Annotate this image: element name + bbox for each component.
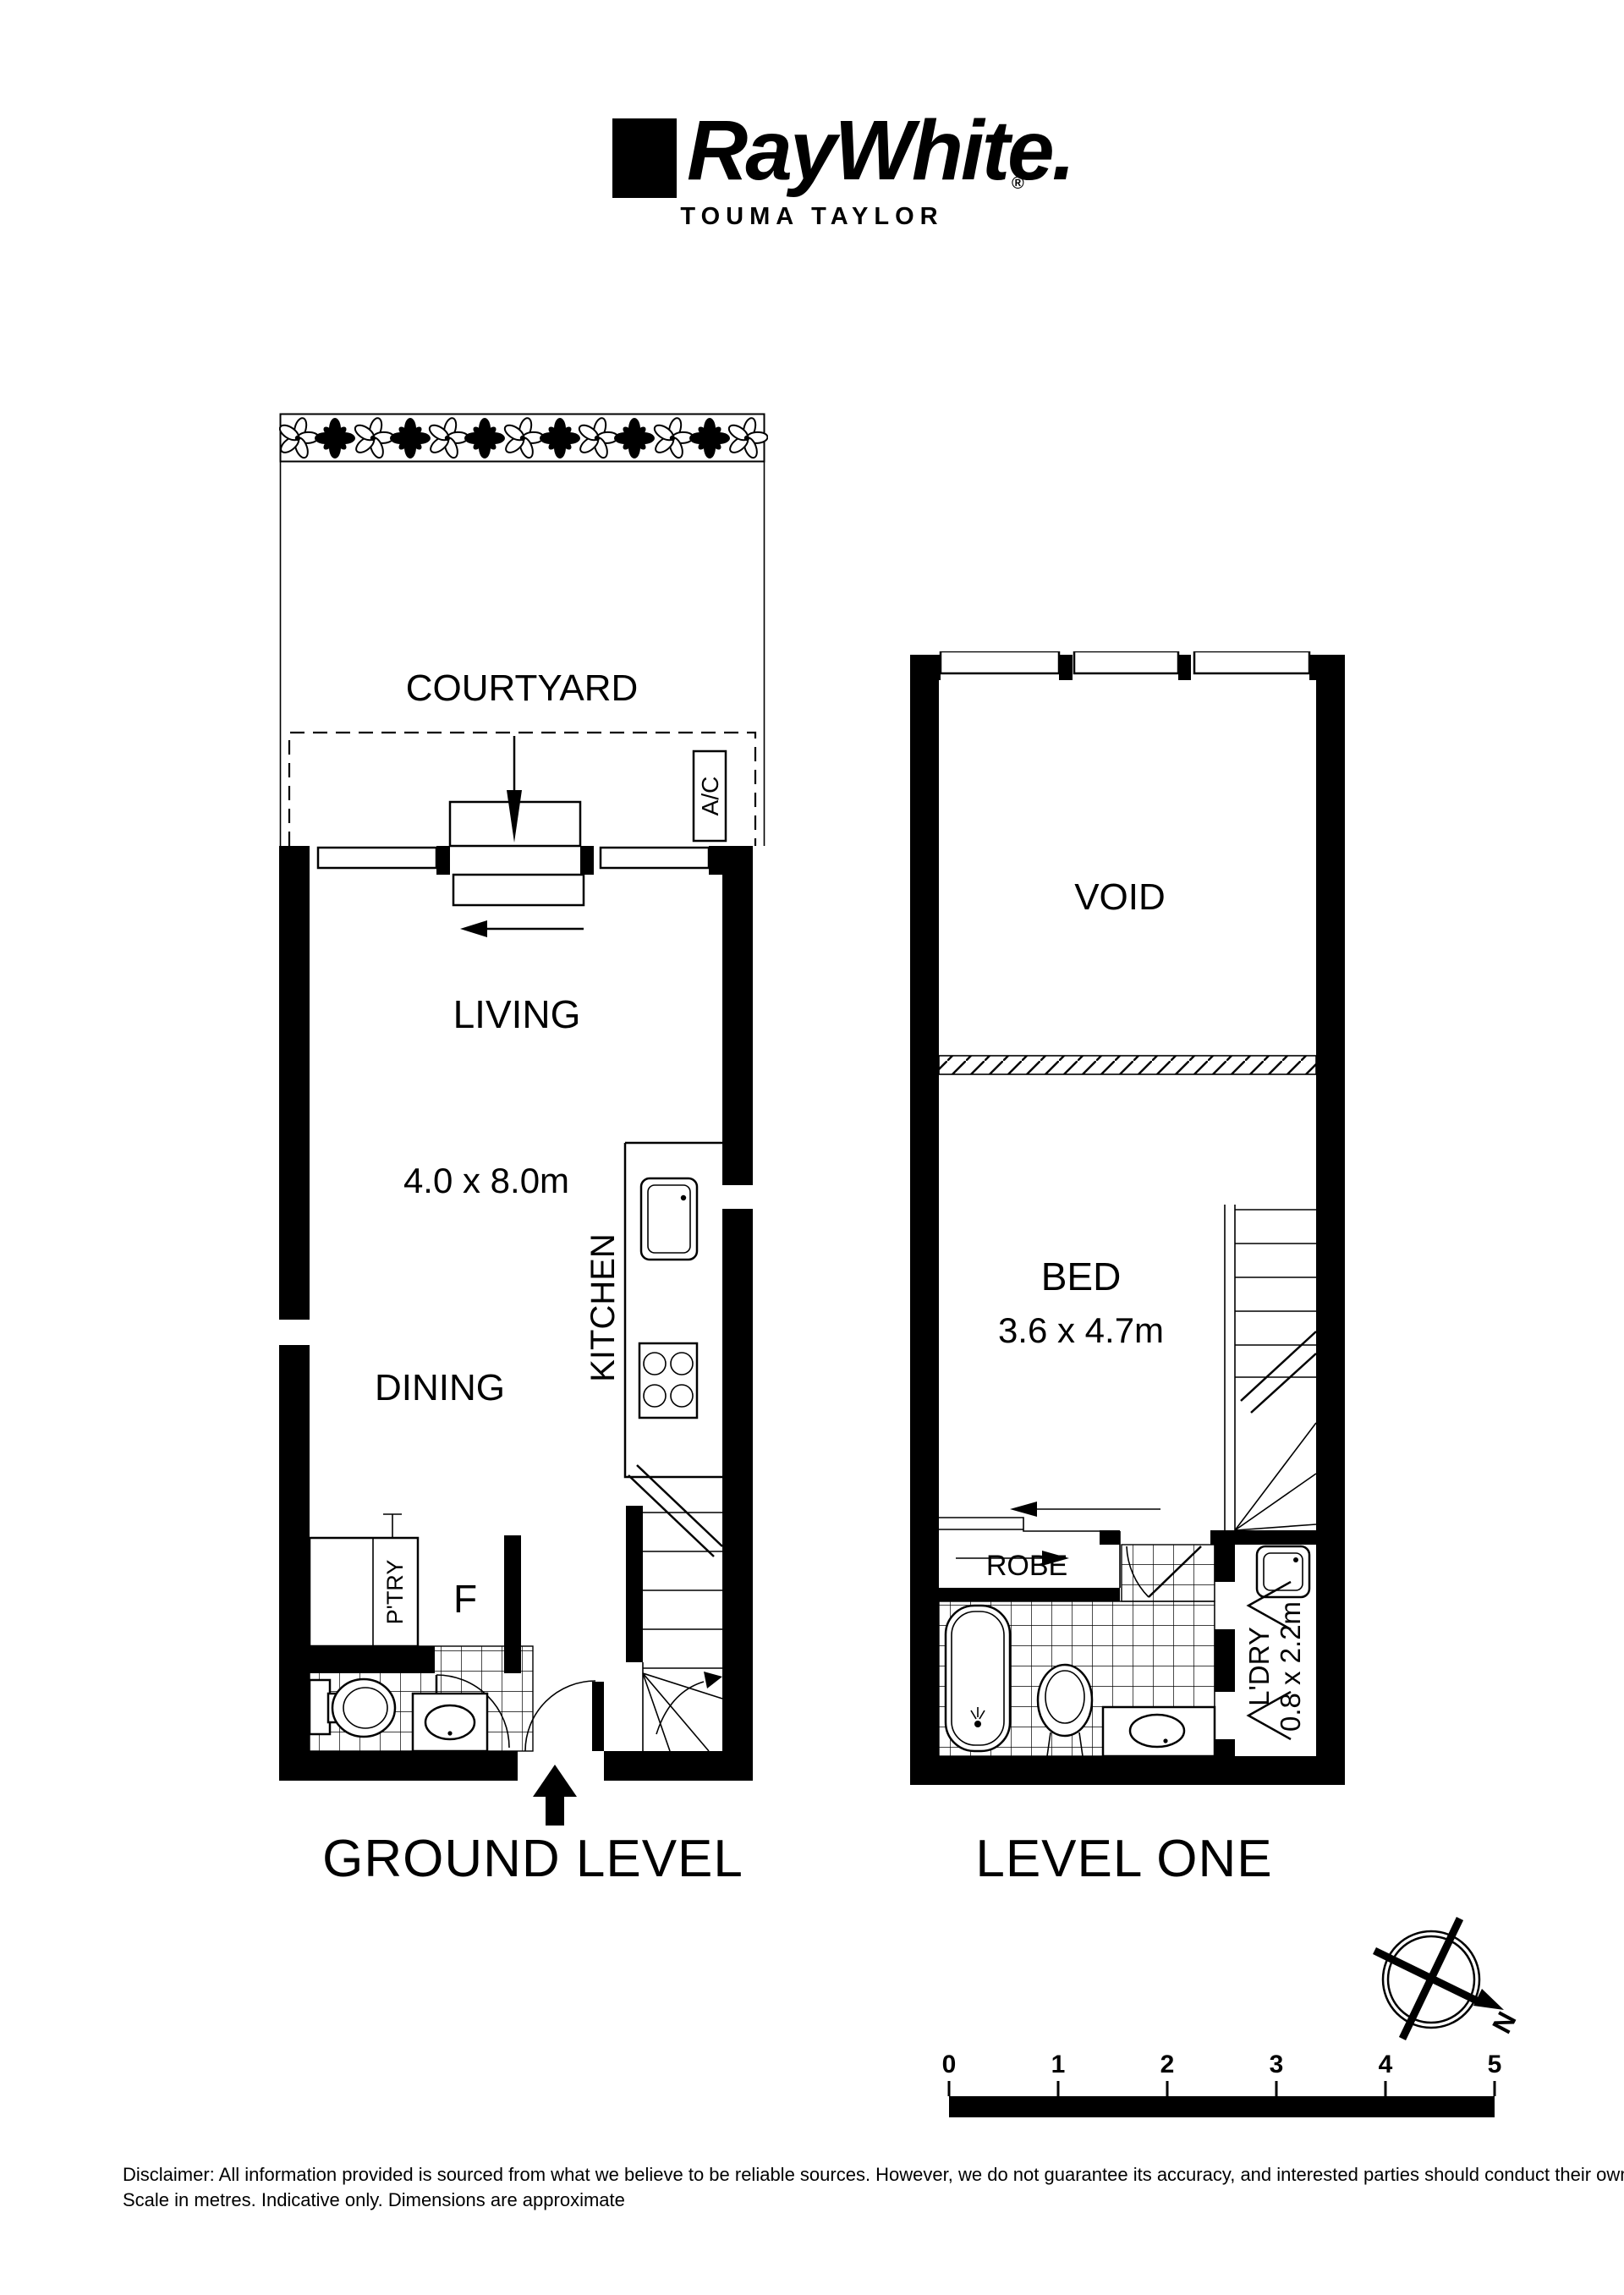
kitchen-counter xyxy=(625,1143,722,1477)
ground-level-caption: GROUND LEVEL xyxy=(279,1829,787,1889)
vanity-basin-icon xyxy=(1103,1707,1215,1756)
sliding-door-icon xyxy=(450,736,584,937)
office-name: TOUMA TAYLOR xyxy=(558,203,1066,231)
scale-tick-0: 0 xyxy=(942,2051,957,2078)
entry-door xyxy=(525,1681,604,1826)
courtyard-hedge-border xyxy=(279,415,768,462)
courtyard-room-label: COURTYARD xyxy=(406,667,639,709)
bath-door-jamb xyxy=(1100,1530,1120,1545)
level-one-caption: LEVEL ONE xyxy=(907,1829,1341,1889)
bed-bath-wall xyxy=(1210,1530,1345,1545)
ac-label: A/C xyxy=(697,777,723,816)
window-icon xyxy=(941,651,1059,673)
void-edge-hatch xyxy=(939,1056,1316,1074)
laundry: L'DRY 0.8 x 2.2m xyxy=(1215,1545,1309,1756)
window-icon xyxy=(601,848,709,868)
void-label: VOID xyxy=(1074,876,1166,918)
level-one-plan: VOID BED 3.6 x 4.7m xyxy=(910,651,1345,1785)
ac-unit-icon: A/C xyxy=(694,751,726,841)
laundry-label: L'DRY xyxy=(1243,1627,1275,1706)
pantry-label: P'TRY xyxy=(382,1560,408,1625)
registered-trademark: ® xyxy=(1012,174,1024,194)
bed-room-label: BED xyxy=(1041,1255,1122,1298)
ground-level-plan: COURTYARD A/C xyxy=(279,413,768,1851)
sink-icon xyxy=(641,1178,697,1260)
bed-dimensions: 3.6 x 4.7m xyxy=(998,1310,1164,1350)
disclaimer-line-2: Scale in metres. Indicative only. Dimens… xyxy=(123,2188,625,2213)
raywhite-logo-square-icon xyxy=(612,118,677,198)
scale-tick-3: 3 xyxy=(1270,2051,1284,2078)
scale-tick-2: 2 xyxy=(1160,2051,1175,2078)
ground-stairs xyxy=(626,1465,722,1751)
north-label: N xyxy=(1486,2007,1522,2038)
living-dimensions: 4.0 x 8.0m xyxy=(403,1161,569,1200)
window-icon xyxy=(318,848,436,868)
scale-tick-4: 4 xyxy=(1379,2051,1393,2078)
level-one-stairs xyxy=(1225,1205,1316,1530)
cooktop-icon xyxy=(639,1343,697,1418)
level-one-bathroom xyxy=(939,1545,1215,1756)
pantry: P'TRY xyxy=(310,1514,418,1646)
fridge-label: F xyxy=(453,1577,477,1621)
laundry-sink-icon xyxy=(1257,1546,1309,1597)
scale-bar: 0 1 2 3 4 5 xyxy=(930,2047,1539,2132)
bathtub-icon xyxy=(946,1606,1010,1751)
compass-north-indicator: N xyxy=(1336,1895,1556,2056)
floorplan-page: RayWhite. ® TOUMA TAYLOR xyxy=(0,0,1624,2295)
dining-room-label: DINING xyxy=(375,1367,505,1408)
entry-arrow-icon xyxy=(533,1765,577,1826)
laundry-dimensions: 0.8 x 2.2m xyxy=(1275,1601,1306,1732)
stairs-up-arrow xyxy=(656,1682,704,1734)
disclaimer-line-1: Disclaimer: All information provided is … xyxy=(123,2162,1624,2188)
scale-tick-1: 1 xyxy=(1051,2051,1066,2078)
level-one-top-wall xyxy=(910,651,1345,680)
window-icon xyxy=(1194,651,1309,673)
window-icon xyxy=(1074,651,1178,673)
basin-icon xyxy=(413,1694,487,1751)
toilet-icon xyxy=(310,1679,395,1737)
ground-bathroom xyxy=(310,1646,533,1751)
scale-tick-5: 5 xyxy=(1488,2051,1502,2078)
living-room-label: LIVING xyxy=(453,992,581,1036)
kitchen-room-label: KITCHEN xyxy=(584,1233,622,1382)
courtyard-boundary xyxy=(281,462,765,846)
living-courtyard-wall xyxy=(279,846,753,875)
